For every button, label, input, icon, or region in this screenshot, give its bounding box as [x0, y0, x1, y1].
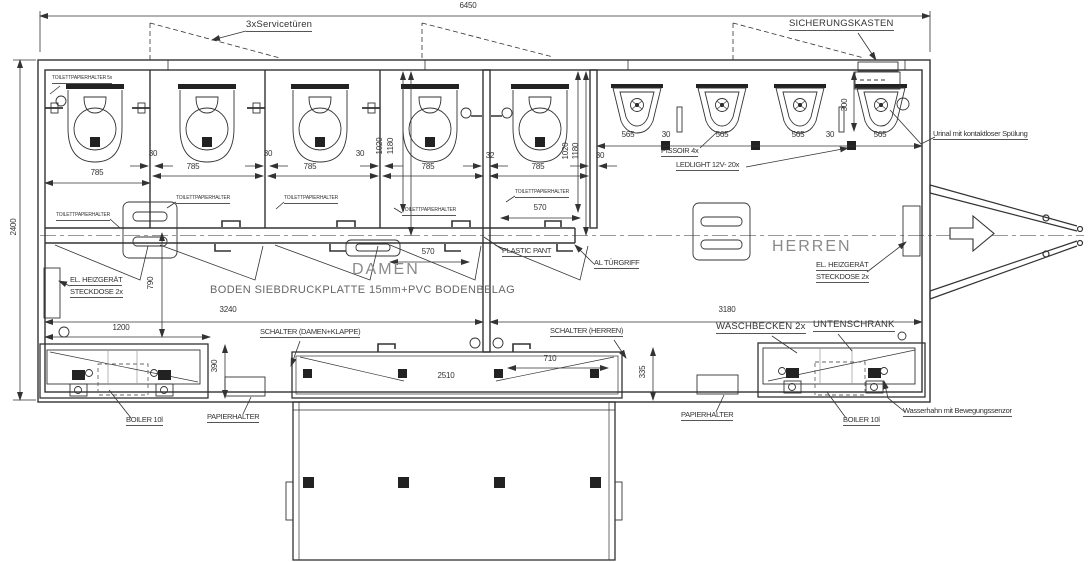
dim-gap-3: 30 — [350, 150, 370, 158]
label-room-damen: DAMEN — [352, 262, 420, 278]
dim-basin-depth: 390 — [211, 347, 219, 385]
floor-plan-canvas: 6450 2400 785 785 785 785 785 30 30 30 3… — [0, 0, 1088, 562]
bench — [693, 203, 750, 260]
label-tp-4: TOILETTPAPIERHALTER — [402, 208, 456, 216]
dim-gap-1: 30 — [143, 150, 163, 158]
label-ledlight: LEDLIGHT 12V- 20x — [676, 161, 739, 171]
urinal-2 — [696, 84, 748, 133]
leader-lines — [50, 31, 935, 418]
dim-1020-a: 1020 — [376, 127, 384, 165]
door-leaf — [123, 202, 400, 258]
label-boiler-right: BOILER 10l — [843, 416, 880, 426]
dim-stall-3: 785 — [291, 163, 329, 171]
label-tuergriff: AL TÜRGRIFF — [594, 259, 639, 269]
urinals — [611, 84, 909, 133]
basin-counter-right — [758, 332, 925, 397]
paper-holder-right — [697, 375, 738, 394]
dim-door-b: 570 — [410, 248, 446, 256]
label-tp-5: TOILETTPAPIERHALTER — [515, 190, 569, 198]
label-waschbecken: WASCHBECKEN 2x — [716, 322, 806, 334]
label-pissoir: PISSOIR 4x — [661, 147, 698, 157]
dim-300: 300 — [841, 86, 849, 124]
dim-gap-2: 30 — [258, 150, 278, 158]
dim-herren-length: 3180 — [705, 306, 749, 314]
dim-urinal-4: 565 — [866, 131, 894, 139]
urinal-1 — [611, 84, 663, 133]
dim-counter-depth: 335 — [639, 353, 647, 391]
dim-basin: 1200 — [99, 324, 143, 332]
toilet-2 — [178, 84, 236, 162]
dim-stall-4: 785 — [409, 163, 447, 171]
dim-damen-length: 3240 — [206, 306, 250, 314]
dim-stall-5: 785 — [519, 163, 557, 171]
faucet — [779, 368, 802, 394]
faucet — [866, 368, 888, 394]
label-floor-spec: BODEN SIEBDRUCKPLATTE 15mm+PVC BODENBELA… — [210, 285, 515, 296]
fold-down-platform — [286, 402, 622, 560]
label-plastic-pant: PLASTIC PANT — [502, 247, 551, 257]
tp-roll — [461, 108, 471, 118]
dim-herren-counter: 710 — [528, 355, 572, 363]
direction-arrow — [950, 216, 994, 251]
label-papierhalter-right: PAPIERHALTER — [681, 411, 733, 421]
label-schalter-herren: SCHALTER (HERREN) — [550, 327, 623, 337]
label-tp-3: TOILETTPAPIERHALTER — [284, 196, 338, 204]
urinal-3 — [774, 84, 826, 133]
label-room-herren: HERREN — [772, 239, 852, 255]
label-tp-1: TOILETTPAPIERHALTER — [56, 213, 110, 221]
label-heater-right-1: EL. HEIZGERÄT — [816, 261, 868, 271]
label-heater-left-2: STECKDOSE 2x — [70, 288, 123, 298]
dim-urinal-2: 565 — [708, 131, 736, 139]
stall-circle — [56, 96, 66, 106]
boiler-dashed — [815, 362, 865, 395]
dim-1020-b: 1020 — [562, 132, 570, 170]
dim-door-a: 570 — [522, 204, 558, 212]
stall-fixtures — [45, 96, 512, 118]
doors — [55, 202, 588, 280]
heater-right — [903, 206, 920, 256]
dim-urinal-gap-2: 30 — [820, 131, 840, 139]
tp-roll — [502, 108, 512, 118]
paper-holder-left — [225, 377, 265, 396]
label-boiler-left: BOILER 10l — [126, 416, 163, 426]
label-schalter-damen: SCHALTER (DAMEN+KLAPPE) — [260, 328, 360, 338]
boiler-dashed — [98, 364, 148, 395]
dim-1180-a: 1180 — [387, 127, 395, 165]
dim-urinal-1: 565 — [614, 131, 642, 139]
dim-1180-b: 1180 — [572, 132, 580, 170]
heater-left — [44, 268, 60, 318]
label-papierhalter-left: PAPIERHALTER — [207, 413, 259, 423]
toilet-1 — [66, 84, 124, 162]
dim-gap-5: 30 — [590, 152, 610, 160]
basin-counter-left — [40, 327, 208, 398]
drawbar — [930, 185, 1083, 299]
dim-flap: 2510 — [424, 372, 468, 380]
label-untenschrank: UNTENSCHRANK — [813, 320, 895, 332]
label-wasserhahn: Wasserhahn mit Bewegungssenzor — [903, 407, 1012, 417]
walls — [38, 60, 930, 402]
dim-urinal-3: 565 — [784, 131, 812, 139]
dim-total-length: 6450 — [446, 2, 490, 10]
dim-total-width: 2400 — [10, 208, 18, 246]
dim-gap-4: 32 — [480, 152, 500, 160]
label-heater-left-1: EL. HEIZGERÄT — [70, 276, 122, 286]
label-tp-2: TOILETTPAPIERHALTER — [176, 196, 230, 204]
toilet-4 — [401, 84, 459, 162]
flush-sensor — [897, 98, 909, 110]
plan-linework — [0, 0, 1088, 562]
dim-corridor: 790 — [147, 264, 155, 302]
label-service-doors: 3xServicetüren — [246, 20, 312, 32]
label-fuse-box: SICHERUNGSKASTEN — [789, 19, 894, 31]
label-tp-main: TOILETTPAPIERHALTER 5x — [52, 76, 112, 84]
label-urinal-flush: Urinal mit kontaktloser Spülung — [933, 130, 1028, 140]
dim-stall-1: 785 — [78, 169, 116, 177]
dim-stall-2: 785 — [174, 163, 212, 171]
dim-urinal-gap-1: 30 — [656, 131, 676, 139]
label-heater-right-2: STECKDOSE 2x — [816, 273, 869, 283]
urinal-partition — [677, 107, 682, 132]
toilet-3 — [291, 84, 349, 162]
